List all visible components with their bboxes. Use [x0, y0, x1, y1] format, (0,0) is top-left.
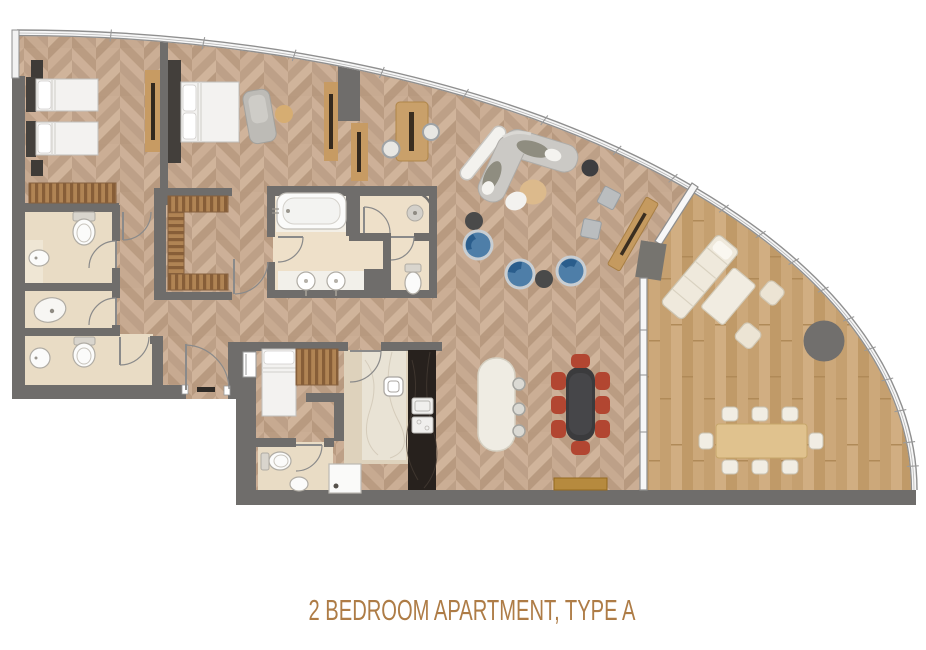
- svg-text:2 BEDROOM APARTMENT, TYPE A: 2 BEDROOM APARTMENT, TYPE A: [309, 595, 636, 627]
